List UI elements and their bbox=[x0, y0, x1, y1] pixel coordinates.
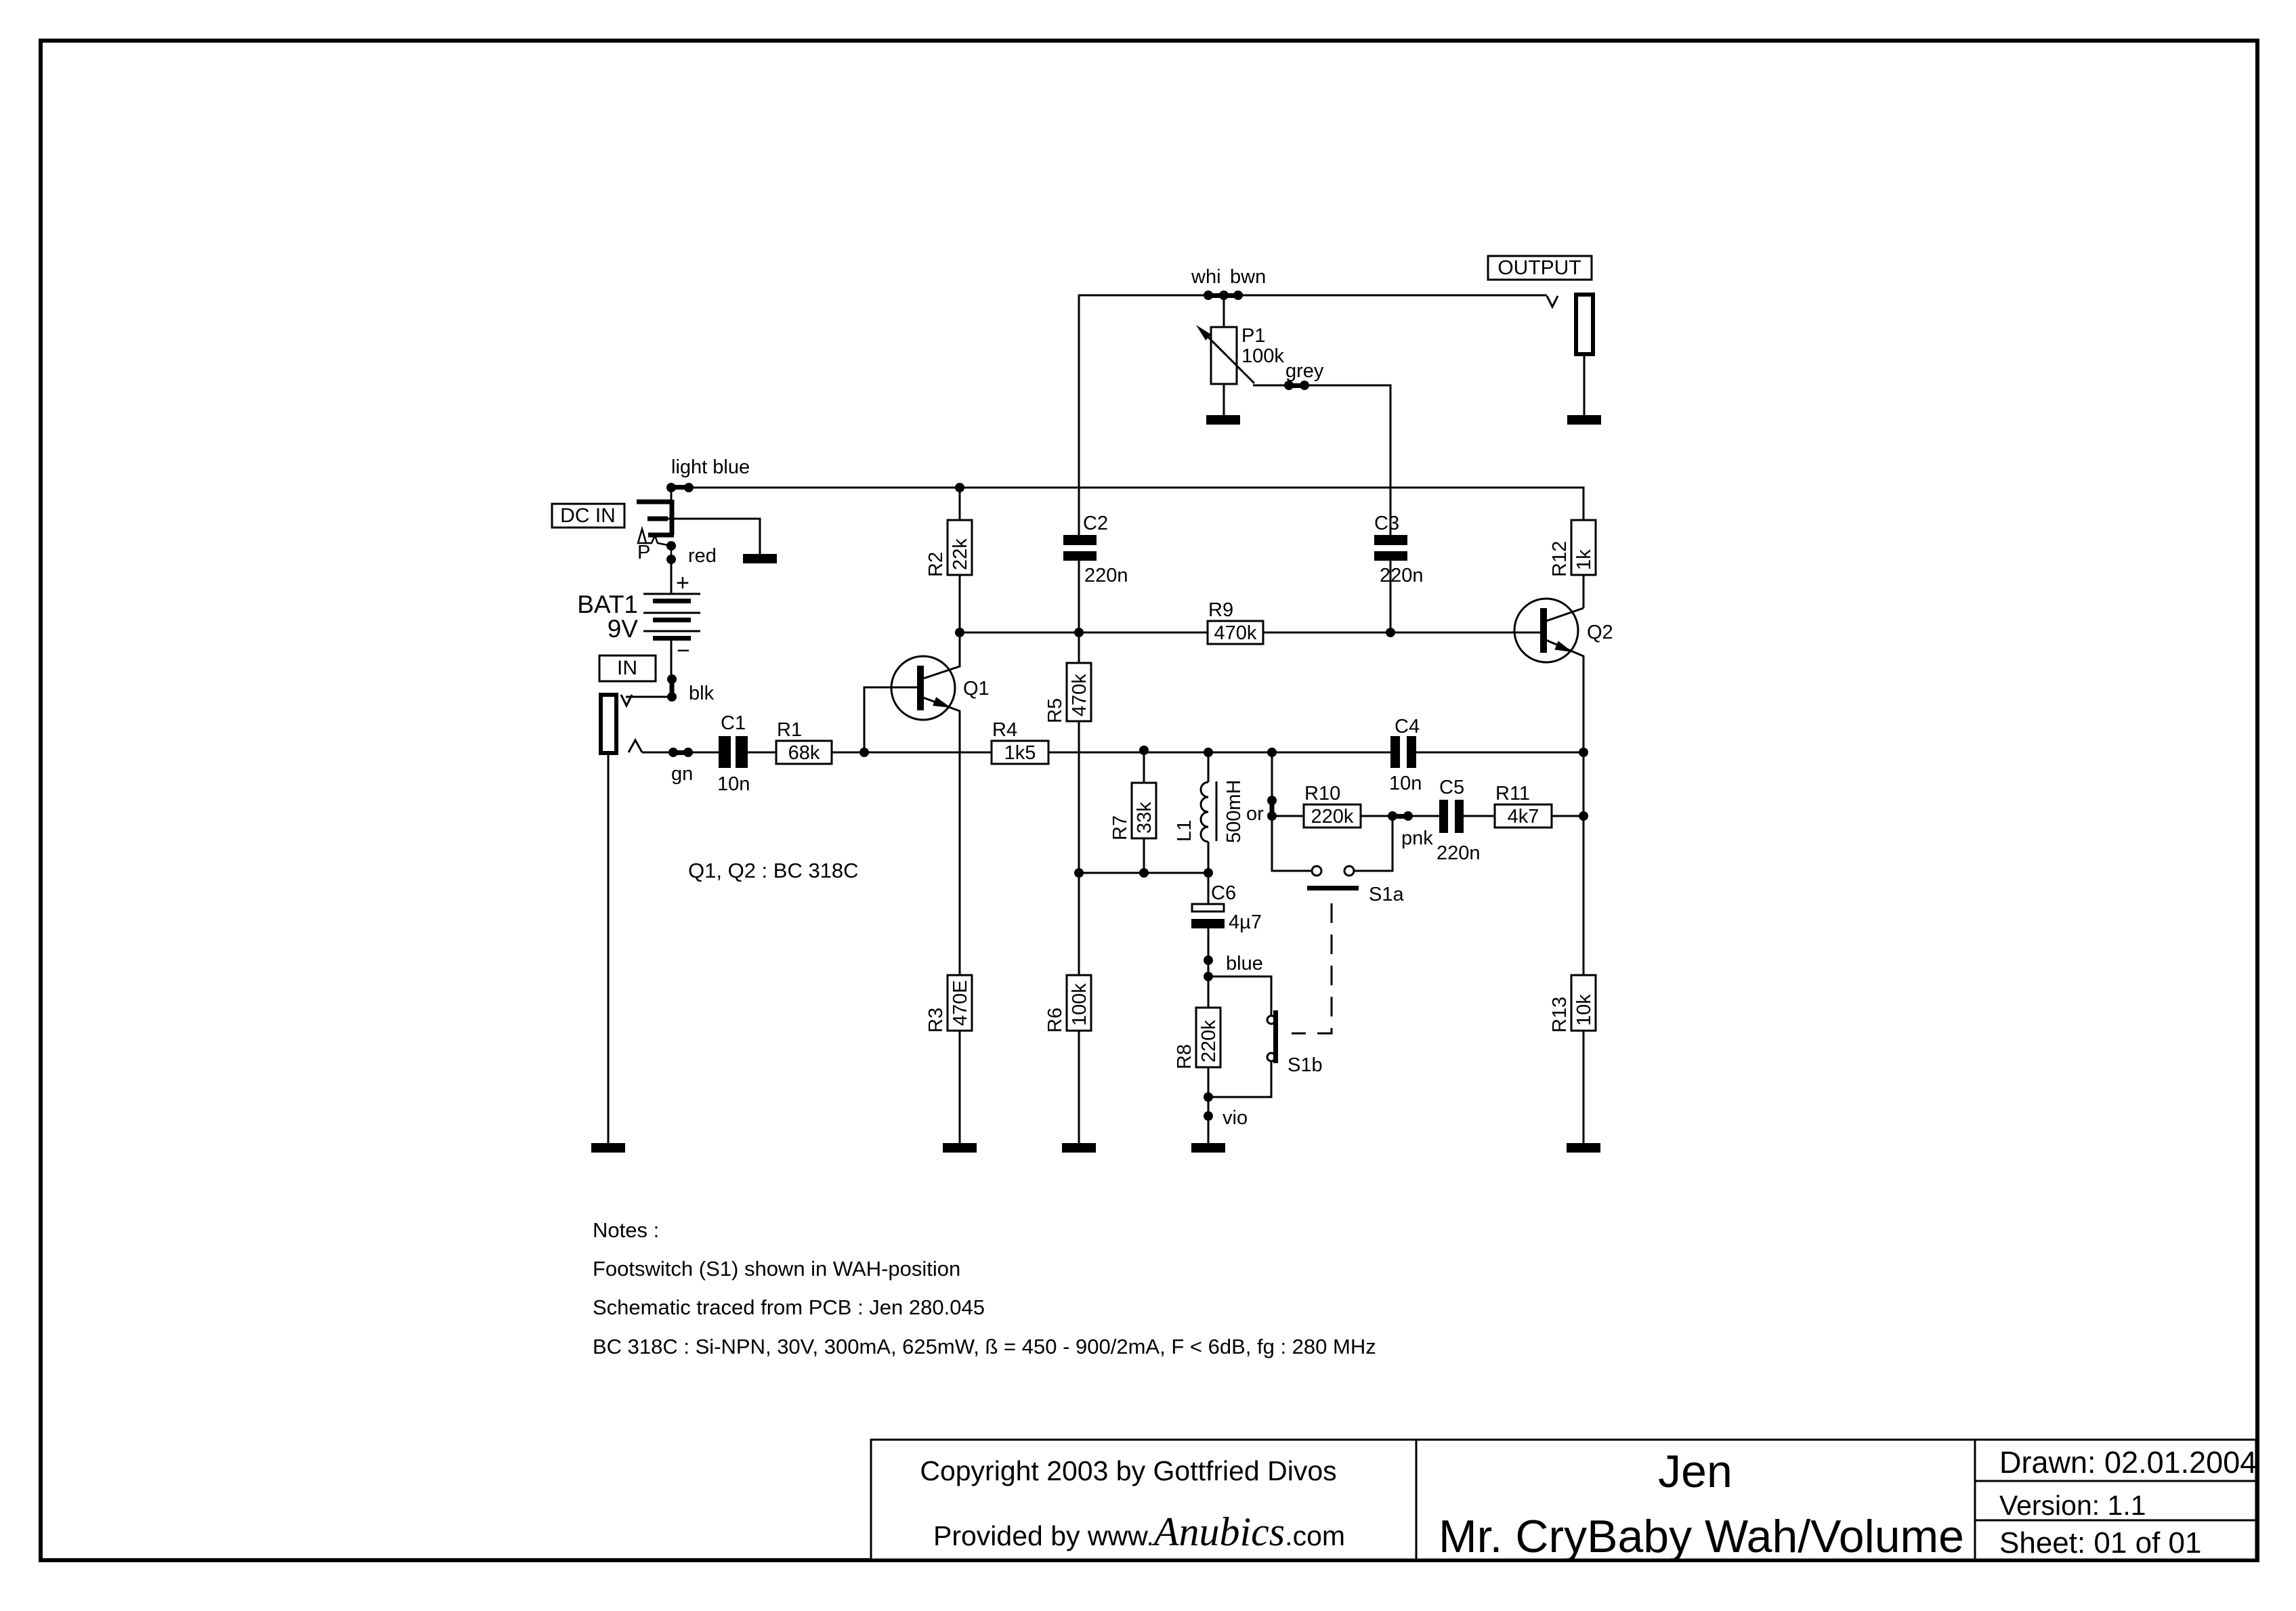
svg-text:10n: 10n bbox=[1389, 773, 1422, 794]
svg-text:R5: R5 bbox=[1044, 698, 1066, 723]
svg-text:L1: L1 bbox=[1174, 820, 1195, 842]
svg-text:9V: 9V bbox=[608, 615, 639, 643]
svg-text:IN: IN bbox=[617, 657, 637, 679]
svg-text:R12: R12 bbox=[1549, 541, 1571, 577]
svg-text:gn: gn bbox=[671, 763, 693, 785]
svg-text:BAT1: BAT1 bbox=[577, 590, 638, 618]
svg-text:BC 318C : Si-NPN, 30V, 300mA,: BC 318C : Si-NPN, 30V, 300mA, 625mW, ß =… bbox=[593, 1335, 1376, 1358]
svg-text:R9: R9 bbox=[1208, 599, 1233, 621]
svg-text:red: red bbox=[688, 545, 717, 567]
svg-text:S1a: S1a bbox=[1369, 884, 1404, 905]
svg-text:220k: 220k bbox=[1198, 1020, 1220, 1062]
svg-text:DC IN: DC IN bbox=[560, 504, 616, 527]
svg-text:Mr. CryBaby Wah/Volume: Mr. CryBaby Wah/Volume bbox=[1439, 1511, 1964, 1562]
svg-text:4k7: 4k7 bbox=[1508, 806, 1539, 828]
svg-text:P1: P1 bbox=[1241, 325, 1265, 347]
svg-text:S1b: S1b bbox=[1288, 1054, 1323, 1076]
svg-text:470k: 470k bbox=[1214, 622, 1257, 644]
svg-text:bwn: bwn bbox=[1230, 266, 1266, 288]
svg-text:OUTPUT: OUTPUT bbox=[1497, 257, 1581, 279]
svg-text:100k: 100k bbox=[1069, 983, 1090, 1026]
svg-text:Schematic traced from PCB : J: Schematic traced from PCB : Jen 280.045 bbox=[593, 1295, 985, 1319]
svg-text:Notes :: Notes : bbox=[593, 1218, 659, 1242]
svg-text:P: P bbox=[637, 542, 650, 563]
svg-text:Drawn: 02.01.2004: Drawn: 02.01.2004 bbox=[1999, 1445, 2257, 1480]
svg-text:Version: 1.1: Version: 1.1 bbox=[1999, 1490, 2146, 1521]
svg-text:R3: R3 bbox=[925, 1008, 947, 1033]
svg-text:Jen: Jen bbox=[1658, 1446, 1732, 1497]
svg-text:or: or bbox=[1246, 803, 1264, 825]
svg-text:Q1: Q1 bbox=[963, 678, 990, 700]
svg-text:470E: 470E bbox=[950, 980, 971, 1026]
svg-text:Sheet: 01 of 01: Sheet: 01 of 01 bbox=[1999, 1526, 2201, 1560]
svg-text:R10: R10 bbox=[1304, 783, 1340, 804]
svg-text:grey: grey bbox=[1285, 360, 1324, 382]
svg-text:100k: 100k bbox=[1241, 345, 1284, 367]
svg-text:Footswitch (S1) shown in WAH-p: Footswitch (S1) shown in WAH-position bbox=[593, 1257, 960, 1281]
svg-text:68k: 68k bbox=[788, 742, 820, 764]
svg-text:C5: C5 bbox=[1439, 777, 1464, 798]
svg-text:1k5: 1k5 bbox=[1004, 742, 1036, 764]
svg-text:220n: 220n bbox=[1437, 842, 1481, 864]
svg-text:R11: R11 bbox=[1495, 783, 1530, 804]
svg-text:220n: 220n bbox=[1084, 565, 1128, 586]
svg-text:220k: 220k bbox=[1311, 806, 1354, 828]
svg-text:10n: 10n bbox=[717, 773, 750, 795]
svg-text:R13: R13 bbox=[1549, 997, 1571, 1033]
svg-text:220n: 220n bbox=[1380, 565, 1424, 586]
svg-text:C1: C1 bbox=[721, 712, 746, 734]
svg-text:whi: whi bbox=[1191, 266, 1221, 288]
svg-text:33k: 33k bbox=[1134, 802, 1155, 834]
svg-text:Copyright 2003 by Gottfried Di: Copyright 2003 by Gottfried Divos bbox=[920, 1455, 1336, 1486]
svg-text:vio: vio bbox=[1223, 1107, 1248, 1129]
svg-text:light blue: light blue bbox=[671, 456, 750, 478]
svg-text:R6: R6 bbox=[1044, 1008, 1066, 1033]
svg-text:blue: blue bbox=[1226, 953, 1263, 974]
svg-text:1k: 1k bbox=[1573, 549, 1595, 570]
svg-text:C2: C2 bbox=[1083, 513, 1108, 534]
svg-text:Q2: Q2 bbox=[1587, 622, 1613, 643]
svg-text:R7: R7 bbox=[1109, 815, 1131, 840]
svg-text:R2: R2 bbox=[925, 552, 947, 577]
svg-text:+: + bbox=[676, 570, 689, 596]
svg-text:22k: 22k bbox=[950, 538, 971, 570]
svg-text:pnk: pnk bbox=[1401, 828, 1433, 849]
svg-text:500mH: 500mH bbox=[1223, 780, 1245, 844]
svg-text:C4: C4 bbox=[1395, 716, 1420, 737]
svg-text:C6: C6 bbox=[1211, 882, 1236, 904]
svg-text:4µ7: 4µ7 bbox=[1229, 911, 1262, 933]
svg-text:−: − bbox=[677, 638, 690, 664]
svg-text:R1: R1 bbox=[777, 719, 802, 741]
svg-text:blk: blk bbox=[689, 683, 715, 704]
svg-text:10k: 10k bbox=[1573, 994, 1595, 1026]
svg-text:C3: C3 bbox=[1374, 513, 1399, 534]
svg-text:R4: R4 bbox=[992, 719, 1017, 741]
svg-text:470k: 470k bbox=[1069, 674, 1090, 716]
svg-text:R8: R8 bbox=[1174, 1044, 1195, 1069]
svg-text:Q1, Q2 : BC 318C: Q1, Q2 : BC 318C bbox=[688, 859, 859, 882]
